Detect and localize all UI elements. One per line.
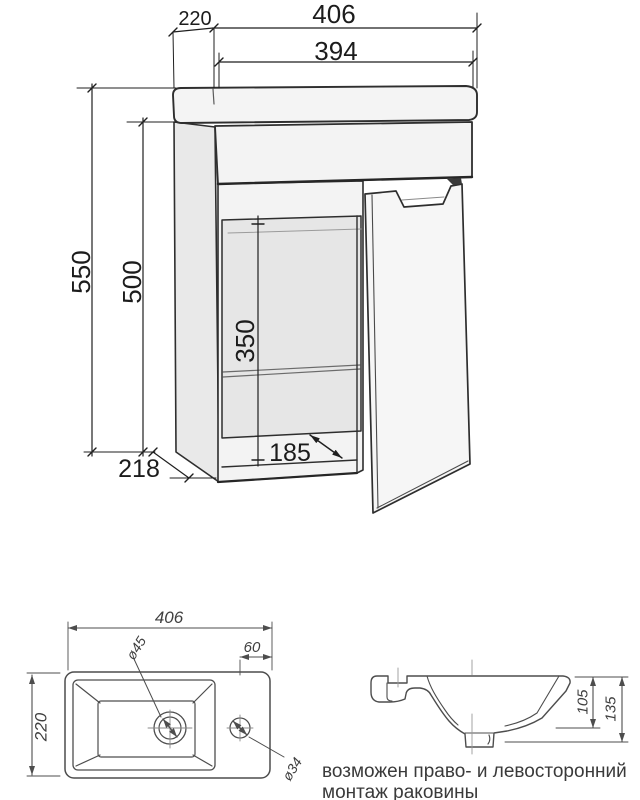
- mounting-note-line2: монтаж раковины: [322, 782, 478, 800]
- dim-label-opening-height: 350: [230, 319, 260, 362]
- profile-label-height2: 135: [603, 696, 620, 722]
- dim-label-interior-depth: 185: [269, 439, 311, 467]
- cabinet-door: [365, 184, 470, 513]
- sink-slab: [173, 86, 477, 123]
- dim-label-height-total: 550: [66, 250, 96, 293]
- vanity-technical-drawing: 406 394 220 550 500 350 185 218: [0, 0, 640, 800]
- mounting-note-line1: возможен право- и левосторонний: [322, 761, 627, 782]
- cabinet-top-band: [215, 122, 472, 184]
- plan-label-drain-diameter: ø45: [123, 633, 149, 662]
- profile-outline: [371, 676, 570, 747]
- dim-label-width-top: 406: [312, 0, 355, 29]
- cabinet-side-panel: [174, 122, 219, 482]
- sink-profile-view: 105 135: [371, 660, 628, 754]
- plan-label-depth: 220: [32, 712, 51, 742]
- dim-label-height-cabinet: 500: [117, 260, 147, 303]
- plan-label-width: 406: [155, 608, 184, 627]
- sink-plan-view: 406 220 60 ø45 ø34: [27, 608, 305, 783]
- profile-label-height1: 105: [575, 689, 592, 715]
- dim-label-depth-top: 220: [178, 8, 211, 30]
- cabinet-front-view: 406 394 220 550 500 350 185 218: [66, 0, 481, 513]
- plan-label-faucet-diameter: ø34: [279, 754, 305, 783]
- door-hinge-mark: [447, 178, 462, 185]
- technical-drawing-page: 406 394 220 550 500 350 185 218: [0, 0, 640, 800]
- dim-label-depth-bottom: 218: [118, 455, 160, 483]
- mounting-note: возможен право- и левосторонний монтаж р…: [322, 761, 627, 800]
- plan-label-faucet-offset: 60: [244, 639, 261, 656]
- door-handle-recess: [402, 197, 444, 200]
- dim-label-width-basin: 394: [314, 36, 357, 66]
